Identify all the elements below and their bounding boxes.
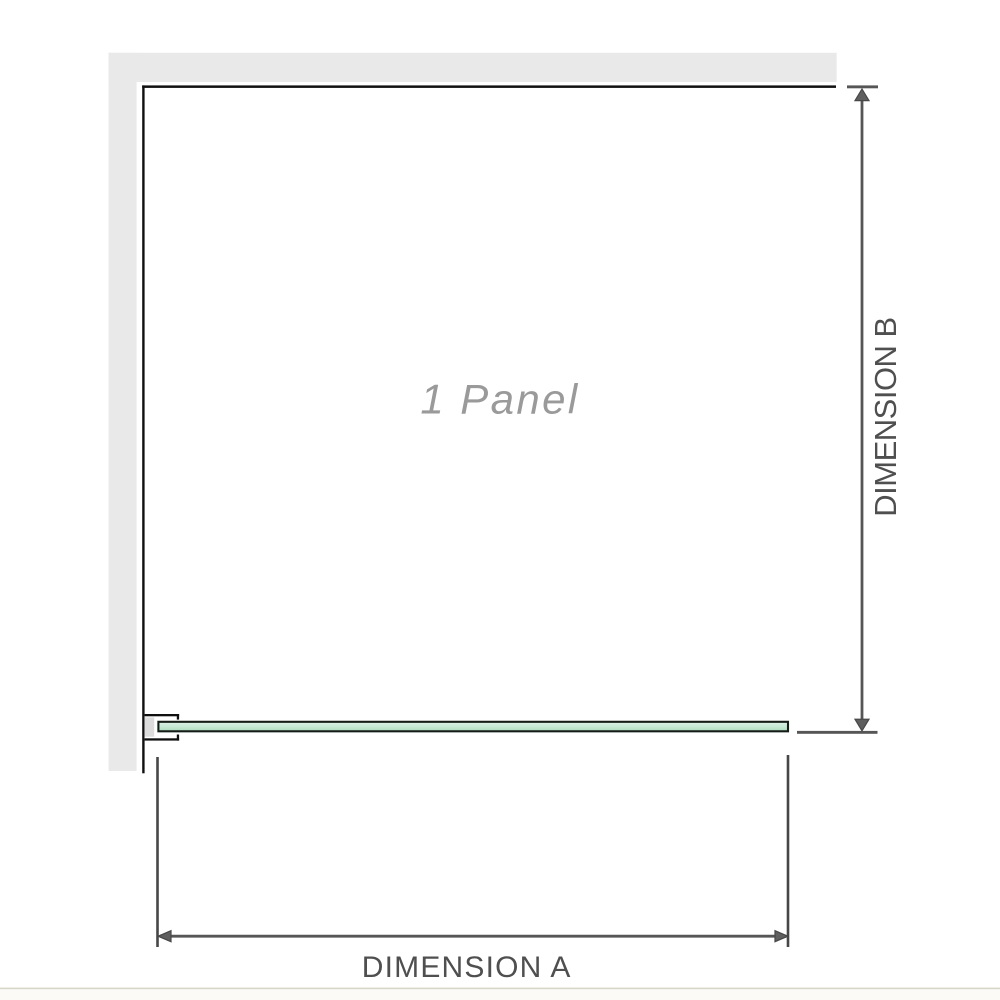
svg-text:DIMENSION B: DIMENSION B xyxy=(868,317,903,516)
svg-text:DIMENSION A: DIMENSION A xyxy=(362,951,572,984)
svg-text:1 Panel: 1 Panel xyxy=(420,376,579,423)
